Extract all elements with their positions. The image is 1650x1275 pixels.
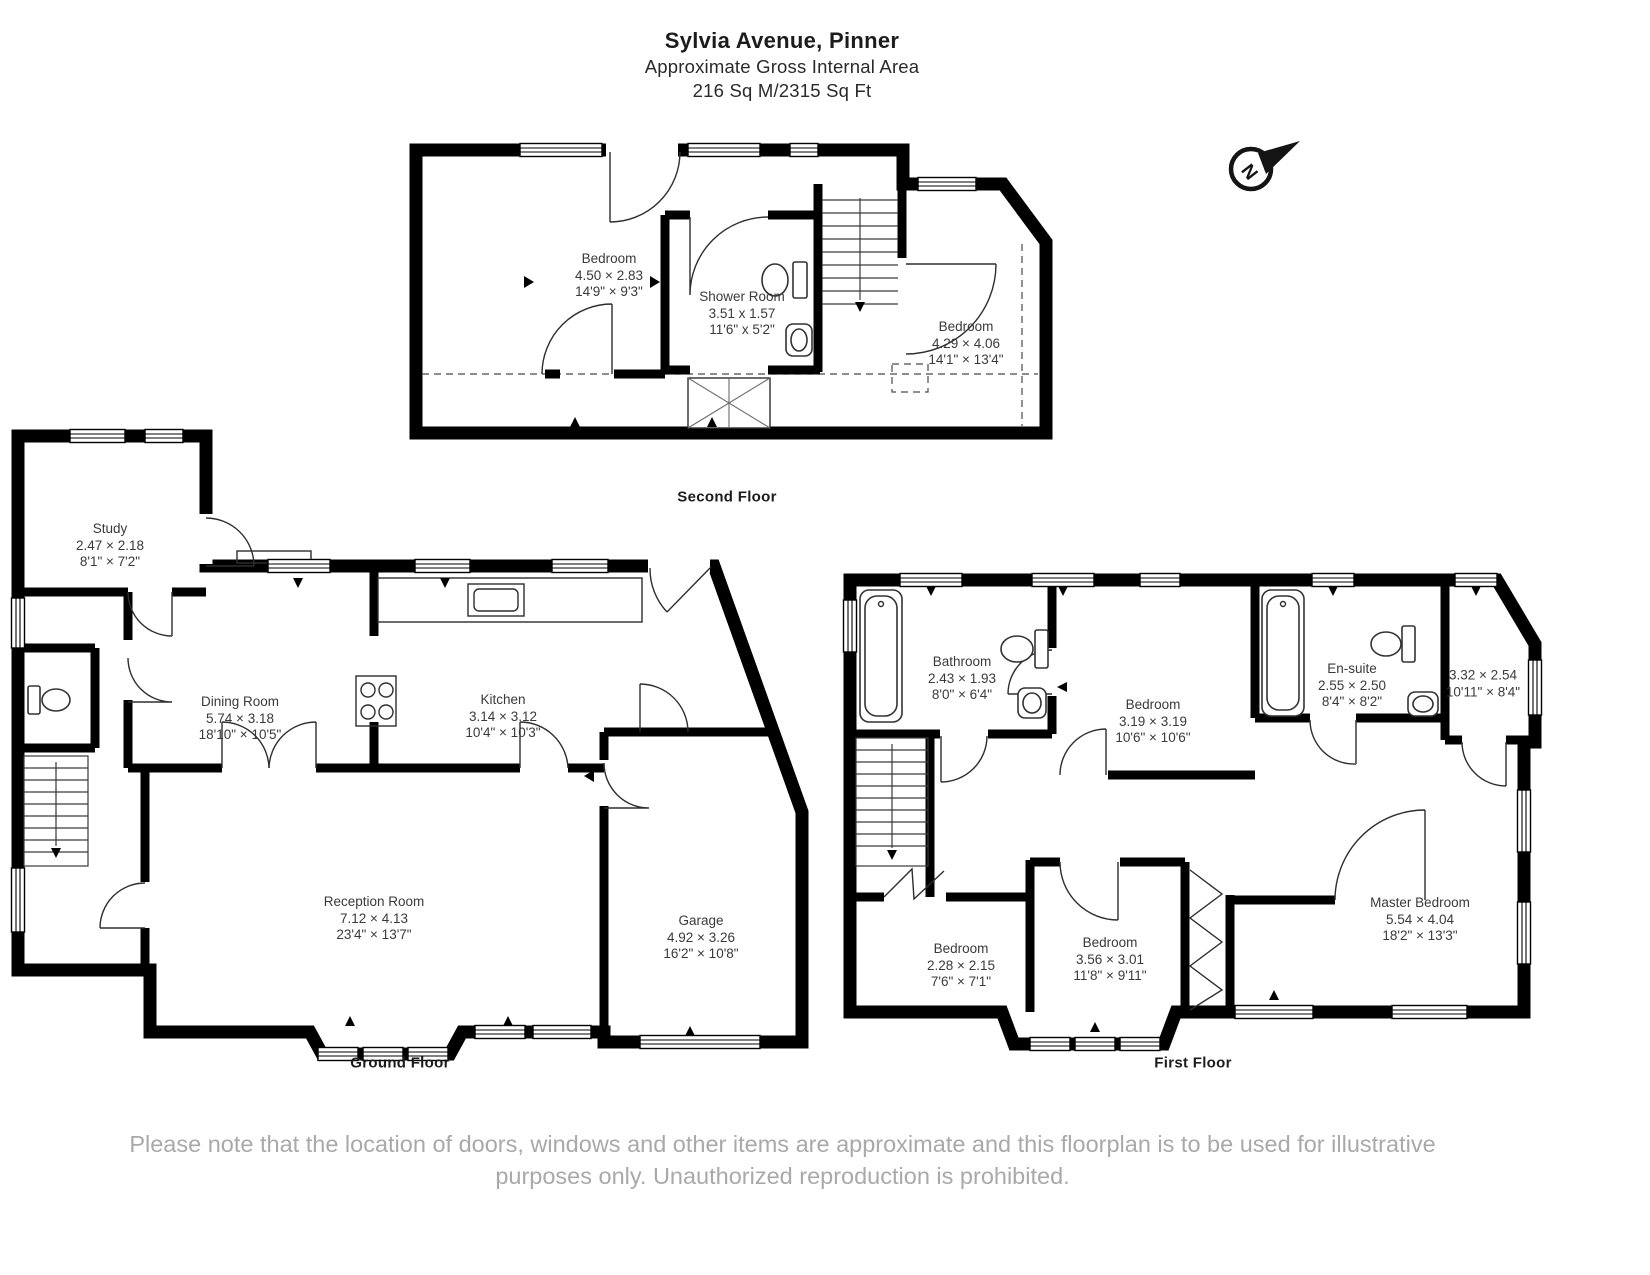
room-label: 3.32 × 2.54 10'11" × 8'4" [1446, 667, 1520, 700]
room-label: Bedroom 3.56 × 3.01 11'8" × 9'11" [1073, 935, 1146, 985]
room-label: Study 2.47 × 2.18 8'1" × 7'2" [76, 521, 144, 571]
north-compass-icon: N [1231, 141, 1300, 189]
room-label: Kitchen 3.14 × 3.12 10'4" × 10'3" [465, 692, 540, 742]
floor-caption-ground: Ground Floor [350, 1055, 449, 1072]
floor-caption-first: First Floor [1154, 1055, 1231, 1072]
room-label: Shower Room 3.51 x 1.57 11'6" x 5'2" [699, 289, 785, 339]
bathtub-icon [860, 590, 902, 722]
room-label: Bedroom 3.19 × 3.19 10'6" × 10'6" [1115, 697, 1190, 747]
room-label: Garage 4.92 × 3.26 16'2" × 10'8" [663, 913, 738, 963]
room-label: Bedroom 4.50 × 2.83 14'9" × 9'3" [575, 251, 643, 301]
room-label: Bedroom 4.29 × 4.06 14'1" × 13'4" [928, 319, 1003, 369]
sink-icon [1018, 688, 1046, 718]
floorplan-page: Sylvia Avenue, Pinner Approximate Gross … [0, 0, 1650, 1275]
room-label: Dining Room 5.74 × 3.18 18'10" × 10'5" [199, 694, 282, 744]
bathtub-icon [1262, 590, 1304, 716]
room-label: Master Bedroom 5.54 × 4.04 18'2" × 13'3" [1370, 895, 1470, 945]
room-label: Bathroom 2.43 × 1.93 8'0" × 6'4" [928, 654, 996, 704]
floor-caption-second: Second Floor [677, 489, 776, 506]
room-label: Reception Room 7.12 × 4.13 23'4" × 13'7" [324, 894, 425, 944]
sink-icon [1408, 692, 1438, 716]
floorplan-drawing: N [0, 0, 1650, 1275]
toilet-icon [28, 686, 70, 714]
sink-icon [786, 324, 812, 356]
room-label: Bedroom 2.28 × 2.15 7'6" × 7'1" [927, 941, 995, 991]
disclaimer-text: Please note that the location of doors, … [110, 1128, 1455, 1193]
room-label: En-suite 2.55 × 2.50 8'4" × 8'2" [1318, 661, 1386, 711]
